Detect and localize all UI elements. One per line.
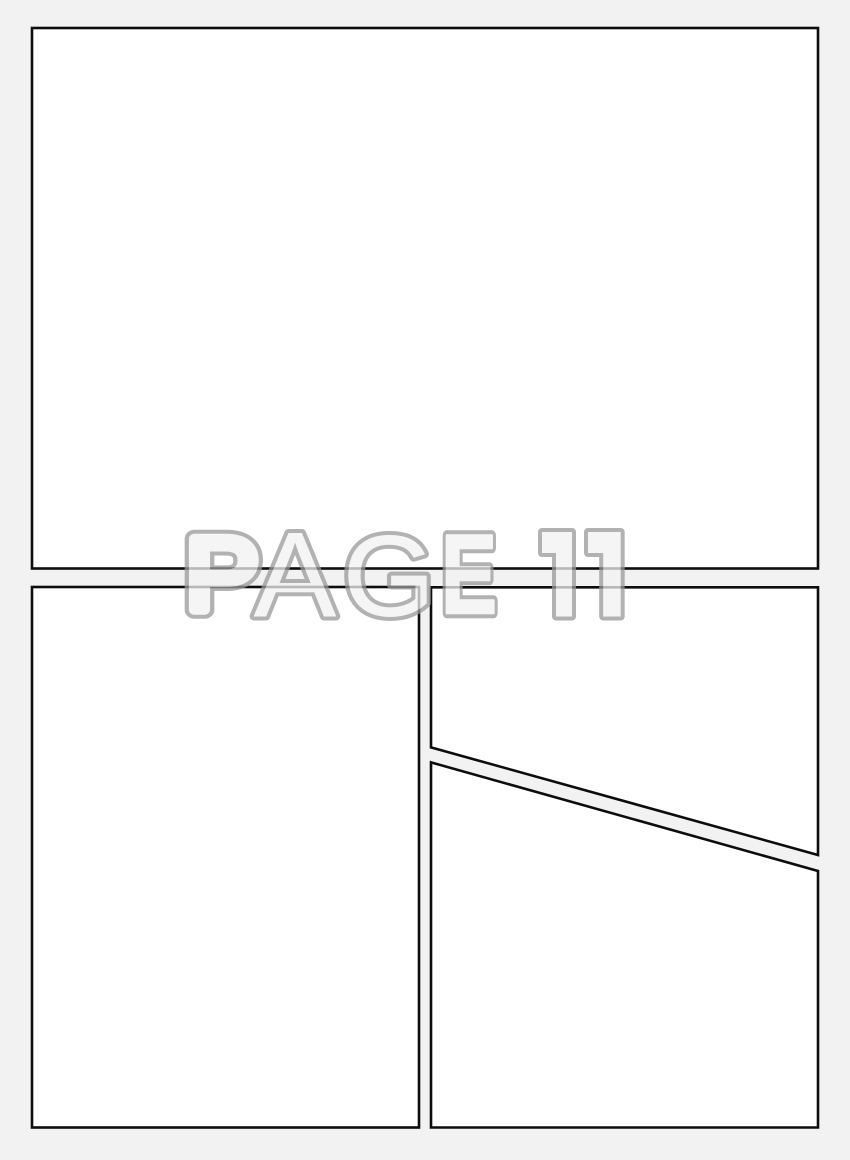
svg-text:P: P	[185, 517, 259, 632]
svg-text:A: A	[254, 507, 337, 643]
svg-text:G: G	[343, 513, 435, 641]
svg-text:E: E	[441, 512, 497, 637]
